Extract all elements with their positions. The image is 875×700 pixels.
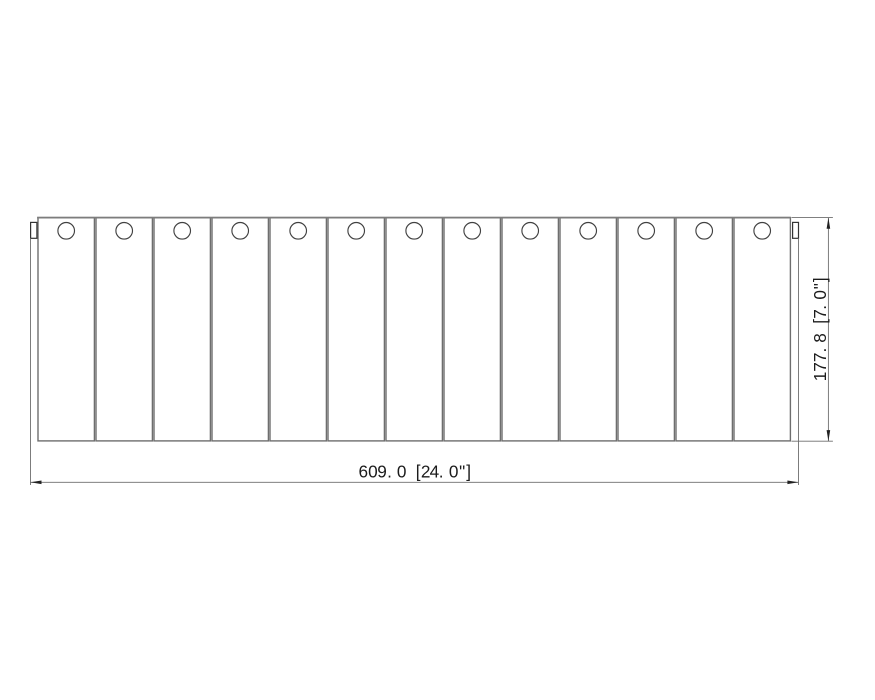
- svg-text:177.8[7.0"]: 177.8[7.0"]: [810, 277, 830, 381]
- svg-text:609.0[24.0"]: 609.0[24.0"]: [359, 461, 472, 481]
